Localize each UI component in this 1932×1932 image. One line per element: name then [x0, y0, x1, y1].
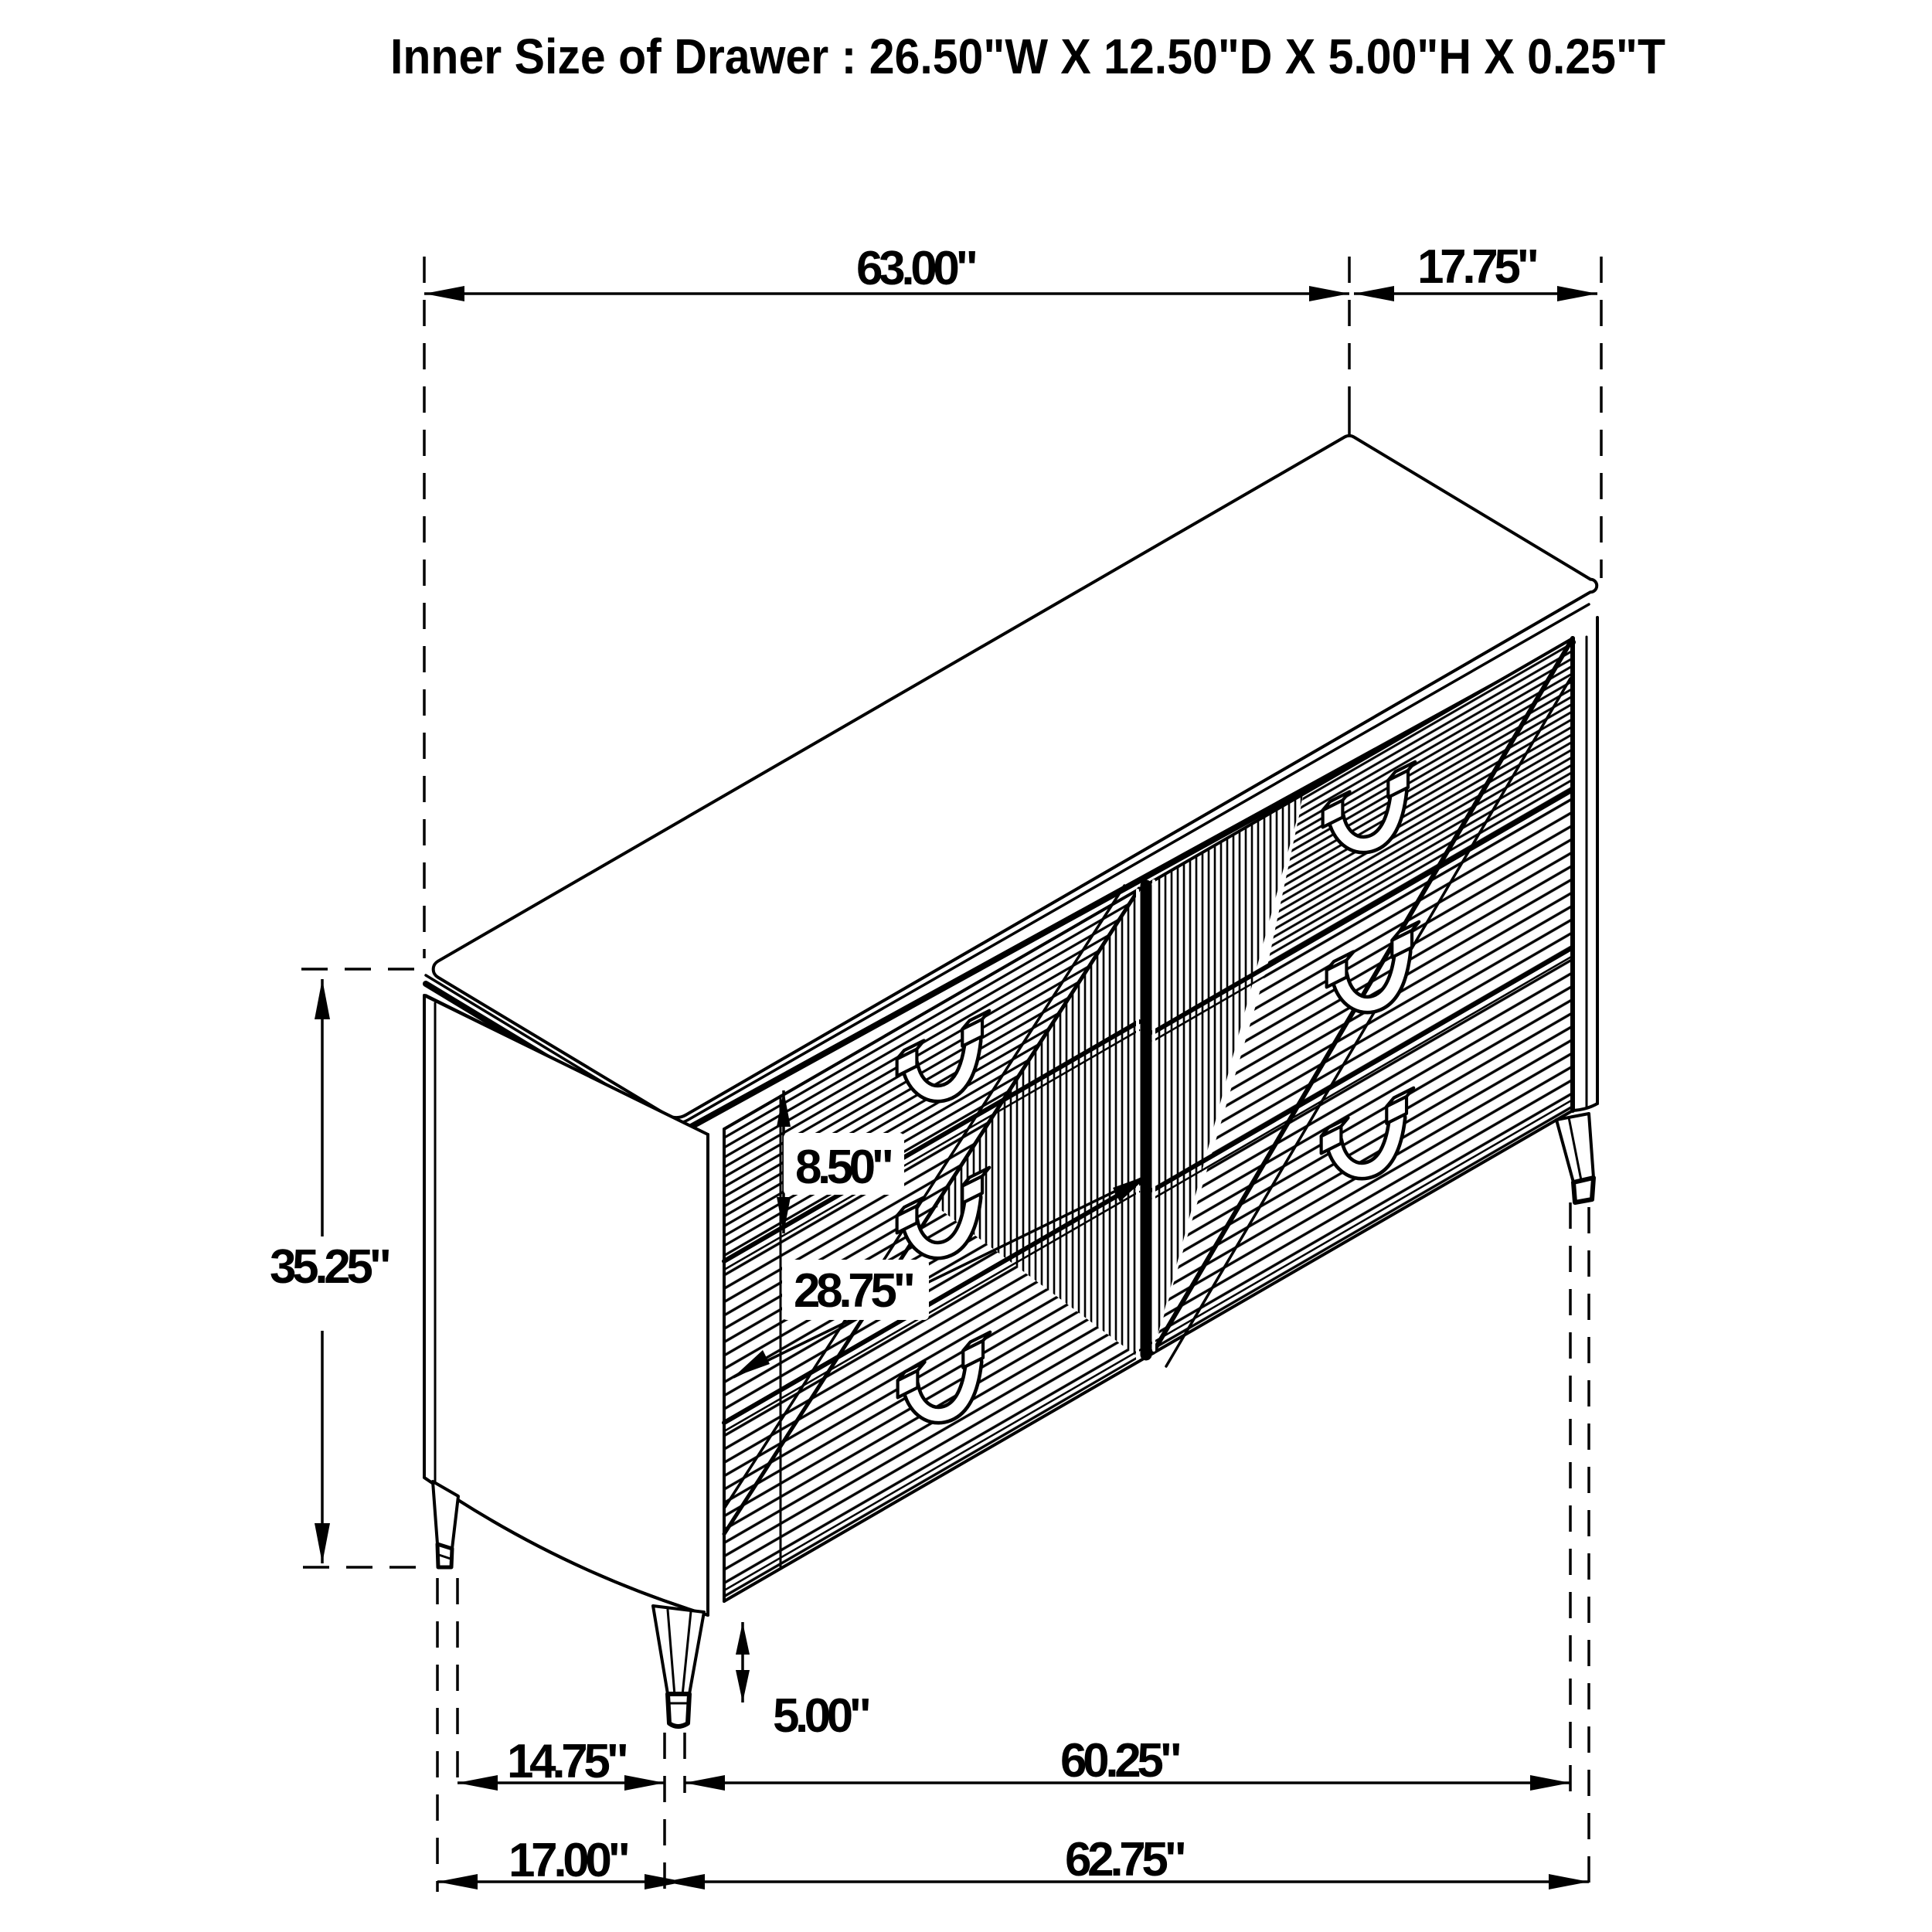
svg-text:5.00": 5.00": [773, 1689, 872, 1743]
svg-text:60.25": 60.25": [1060, 1734, 1182, 1787]
svg-text:62.75": 62.75": [1065, 1833, 1187, 1886]
svg-text:63.00": 63.00": [856, 242, 978, 295]
svg-text:35.25": 35.25": [270, 1240, 392, 1294]
svg-text:Inner Size of Drawer : 26.50"W: Inner Size of Drawer : 26.50"W X 12.50"D…: [390, 29, 1665, 84]
svg-text:8.50": 8.50": [795, 1141, 894, 1194]
svg-text:14.75": 14.75": [507, 1735, 629, 1788]
svg-text:17.00": 17.00": [509, 1834, 631, 1887]
svg-text:28.75": 28.75": [794, 1264, 916, 1318]
svg-text:17.75": 17.75": [1417, 240, 1539, 294]
